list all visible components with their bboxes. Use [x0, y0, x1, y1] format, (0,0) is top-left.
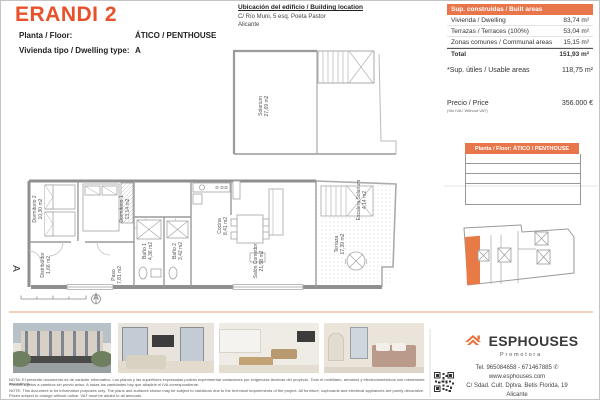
qr-code [434, 372, 454, 392]
usable-areas-label: *Sup. útiles / Usable areas [447, 67, 530, 74]
key-plan [464, 225, 574, 285]
floor-value: ÁTICO / PENTHOUSE [135, 31, 216, 40]
unit-info-table [465, 154, 581, 205]
photo-tv [152, 335, 174, 347]
usable-areas-value: 118,75 m² [562, 67, 593, 74]
photo-arch-mirror [328, 333, 344, 361]
table-row-total: Total 151,93 m² [447, 48, 593, 59]
room-label-distribuidor: Distribuidor1,66 m2 [36, 230, 56, 300]
room-label-salon-comedor: Salón Comedor21,58 m2 [249, 226, 269, 296]
brand-block: ESPHOUSES [451, 332, 591, 349]
photo-sofa [126, 355, 166, 369]
photo-pillow [376, 343, 390, 351]
photo-tree [91, 351, 111, 367]
page-title: ERANDI 2 [15, 3, 117, 27]
photo-dining-table [271, 349, 297, 359]
floor-bar: Planta / Floor: ÁTICO / PENTHOUSE [465, 143, 579, 154]
photo-window [350, 327, 368, 359]
esphouses-logo-icon [464, 332, 486, 349]
room-label-paso: Paso7,81 m2 [107, 240, 127, 310]
room-label-cocina: Cocina8,41 m2 [213, 191, 233, 261]
photo-tv [297, 331, 315, 342]
photo-floor [324, 367, 424, 373]
price-value: 356.000 € [562, 100, 593, 107]
usable-areas-row: *Sup. útiles / Usable areas 118,75 m² [447, 67, 593, 74]
photo-pillow [392, 343, 406, 351]
brand-name: ESPHOUSES [489, 333, 579, 349]
price-label: Precio / Price [447, 100, 489, 107]
location-heading: Ubicación del edificio / Building locati… [238, 4, 363, 11]
photo-floor [219, 365, 319, 373]
empty-row [466, 164, 580, 174]
price-vat-note: (Sin IVA / Without VAT) [447, 108, 593, 113]
room-label-bano-2: Baño 23,42 m2 [168, 216, 188, 286]
brand-tagline: Promotora [451, 352, 591, 358]
footer-address: C/ Sdad. Cult. Dptva. Betis Florida, 19 [438, 383, 596, 389]
dwelling-type-value: A [135, 46, 141, 55]
table-row: Zonas comunes / Communal areas 15,15 m² [447, 37, 593, 48]
floor-label: Planta / Floor: [19, 31, 135, 40]
dwelling-type-label: Vivienda tipo / Dwelling type: [19, 46, 135, 55]
section-label: A [10, 265, 21, 272]
location-address: C/ Río Muni, 5 esq. Poeta Pastor [238, 14, 326, 20]
built-areas-header: Sup. construidas / Built areas [447, 4, 593, 15]
photo-cabinets [219, 329, 261, 353]
footer-website: www.esphouses.com [438, 374, 596, 380]
north-compass-icon [92, 294, 101, 305]
empty-row [466, 174, 580, 184]
photo-window [180, 327, 204, 363]
photo-bedroom [324, 323, 424, 373]
empty-row [466, 154, 580, 164]
disclaimer-es-2: Precios sujetos a cambios sin previo avi… [9, 383, 433, 387]
price-block: Precio / Price 356.000 € (Sin IVA / With… [447, 100, 593, 113]
photo-kitchen [219, 323, 319, 373]
room-label-terraza: Terraza17,39 m2 [330, 209, 350, 279]
empty-row [466, 184, 580, 204]
room-label-escalera-solarium: Escalera Solarium4,14 m2 [352, 165, 372, 235]
photo-living-room [118, 323, 214, 373]
room-label-solarium: Solarium27,69 m2 [254, 71, 274, 141]
table-row: Terrazas / Terraces (100%) 53,04 m² [447, 26, 593, 37]
room-label-dormitorio-1: Dormitorio 113,14 m2 [115, 174, 135, 244]
built-areas-table: Sup. construidas / Built areas Vivienda … [447, 4, 593, 59]
table-row: Vivienda / Dwelling 83,74 m² [447, 15, 593, 26]
room-label-bano-1: Baño 14,36 m2 [138, 216, 158, 286]
whatsapp-icon: ✆ [554, 365, 559, 371]
footer-phone: Tel. 965084658 - 671467885 ✆ [438, 364, 596, 371]
disclaimer-en-2: Prices subject to change without notice.… [9, 394, 433, 398]
location-city: Alicante [238, 22, 259, 28]
flyer-page: ERANDI 2 Planta / Floor: ÁTICO / PENTHOU… [0, 0, 600, 400]
photo-building-exterior [13, 323, 111, 373]
footer-city: Alicante [438, 392, 596, 398]
